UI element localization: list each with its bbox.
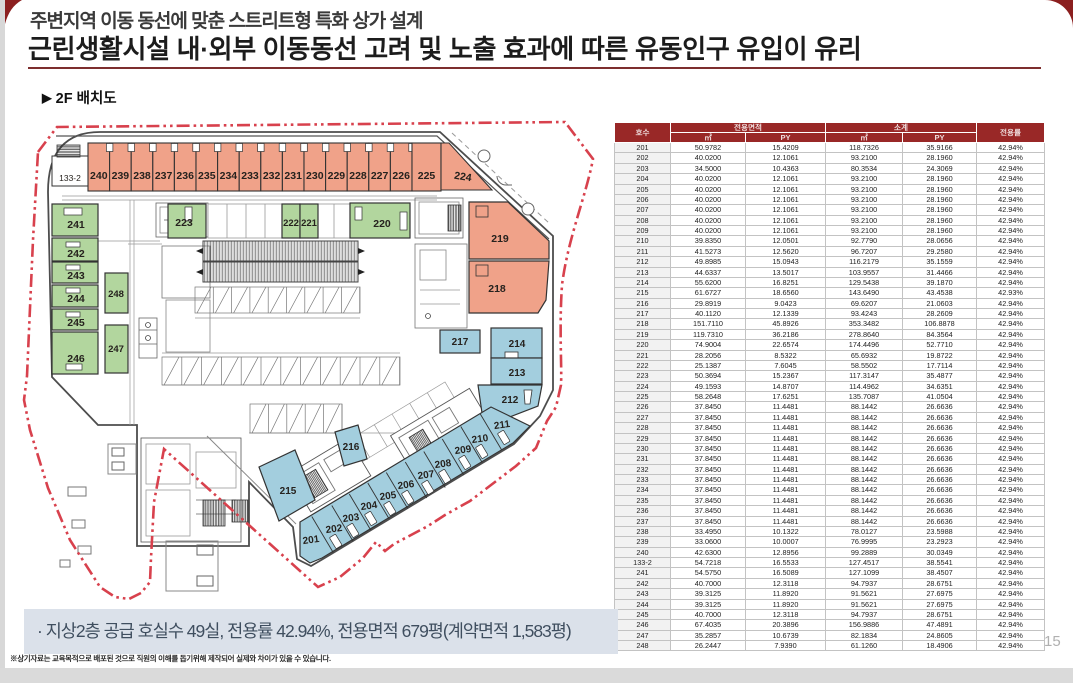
svg-text:245: 245 <box>67 317 85 329</box>
svg-text:226: 226 <box>392 170 410 182</box>
svg-text:230: 230 <box>306 170 324 182</box>
svg-text:219: 219 <box>491 233 509 245</box>
svg-text:214: 214 <box>509 339 526 350</box>
svg-text:244: 244 <box>67 293 85 305</box>
svg-text:243: 243 <box>67 270 85 282</box>
svg-text:239: 239 <box>112 170 130 182</box>
svg-text:235: 235 <box>198 170 216 182</box>
svg-text:227: 227 <box>371 170 389 182</box>
svg-text:213: 213 <box>509 368 526 379</box>
svg-text:229: 229 <box>328 170 346 182</box>
svg-text:225: 225 <box>418 170 436 182</box>
svg-text:221: 221 <box>301 218 318 229</box>
svg-text:233: 233 <box>241 170 259 182</box>
svg-text:220: 220 <box>373 218 391 230</box>
svg-text:231: 231 <box>284 170 302 182</box>
svg-text:215: 215 <box>280 486 297 497</box>
svg-text:216: 216 <box>343 442 360 453</box>
svg-text:240: 240 <box>90 170 108 182</box>
svg-text:236: 236 <box>176 170 194 182</box>
svg-text:237: 237 <box>155 170 173 182</box>
svg-text:234: 234 <box>220 170 238 182</box>
svg-text:241: 241 <box>67 219 85 231</box>
svg-text:232: 232 <box>263 170 281 182</box>
svg-text:246: 246 <box>67 353 85 365</box>
svg-text:211: 211 <box>493 419 511 432</box>
svg-text:223: 223 <box>175 217 193 229</box>
svg-text:222: 222 <box>283 218 299 229</box>
svg-text:247: 247 <box>108 344 124 355</box>
svg-text:212: 212 <box>502 395 519 406</box>
svg-text:248: 248 <box>108 289 124 300</box>
svg-text:238: 238 <box>133 170 151 182</box>
svg-text:242: 242 <box>67 248 85 260</box>
svg-text:217: 217 <box>452 337 469 348</box>
svg-text:133-2: 133-2 <box>59 173 81 183</box>
svg-text:218: 218 <box>488 283 506 295</box>
svg-text:228: 228 <box>349 170 367 182</box>
